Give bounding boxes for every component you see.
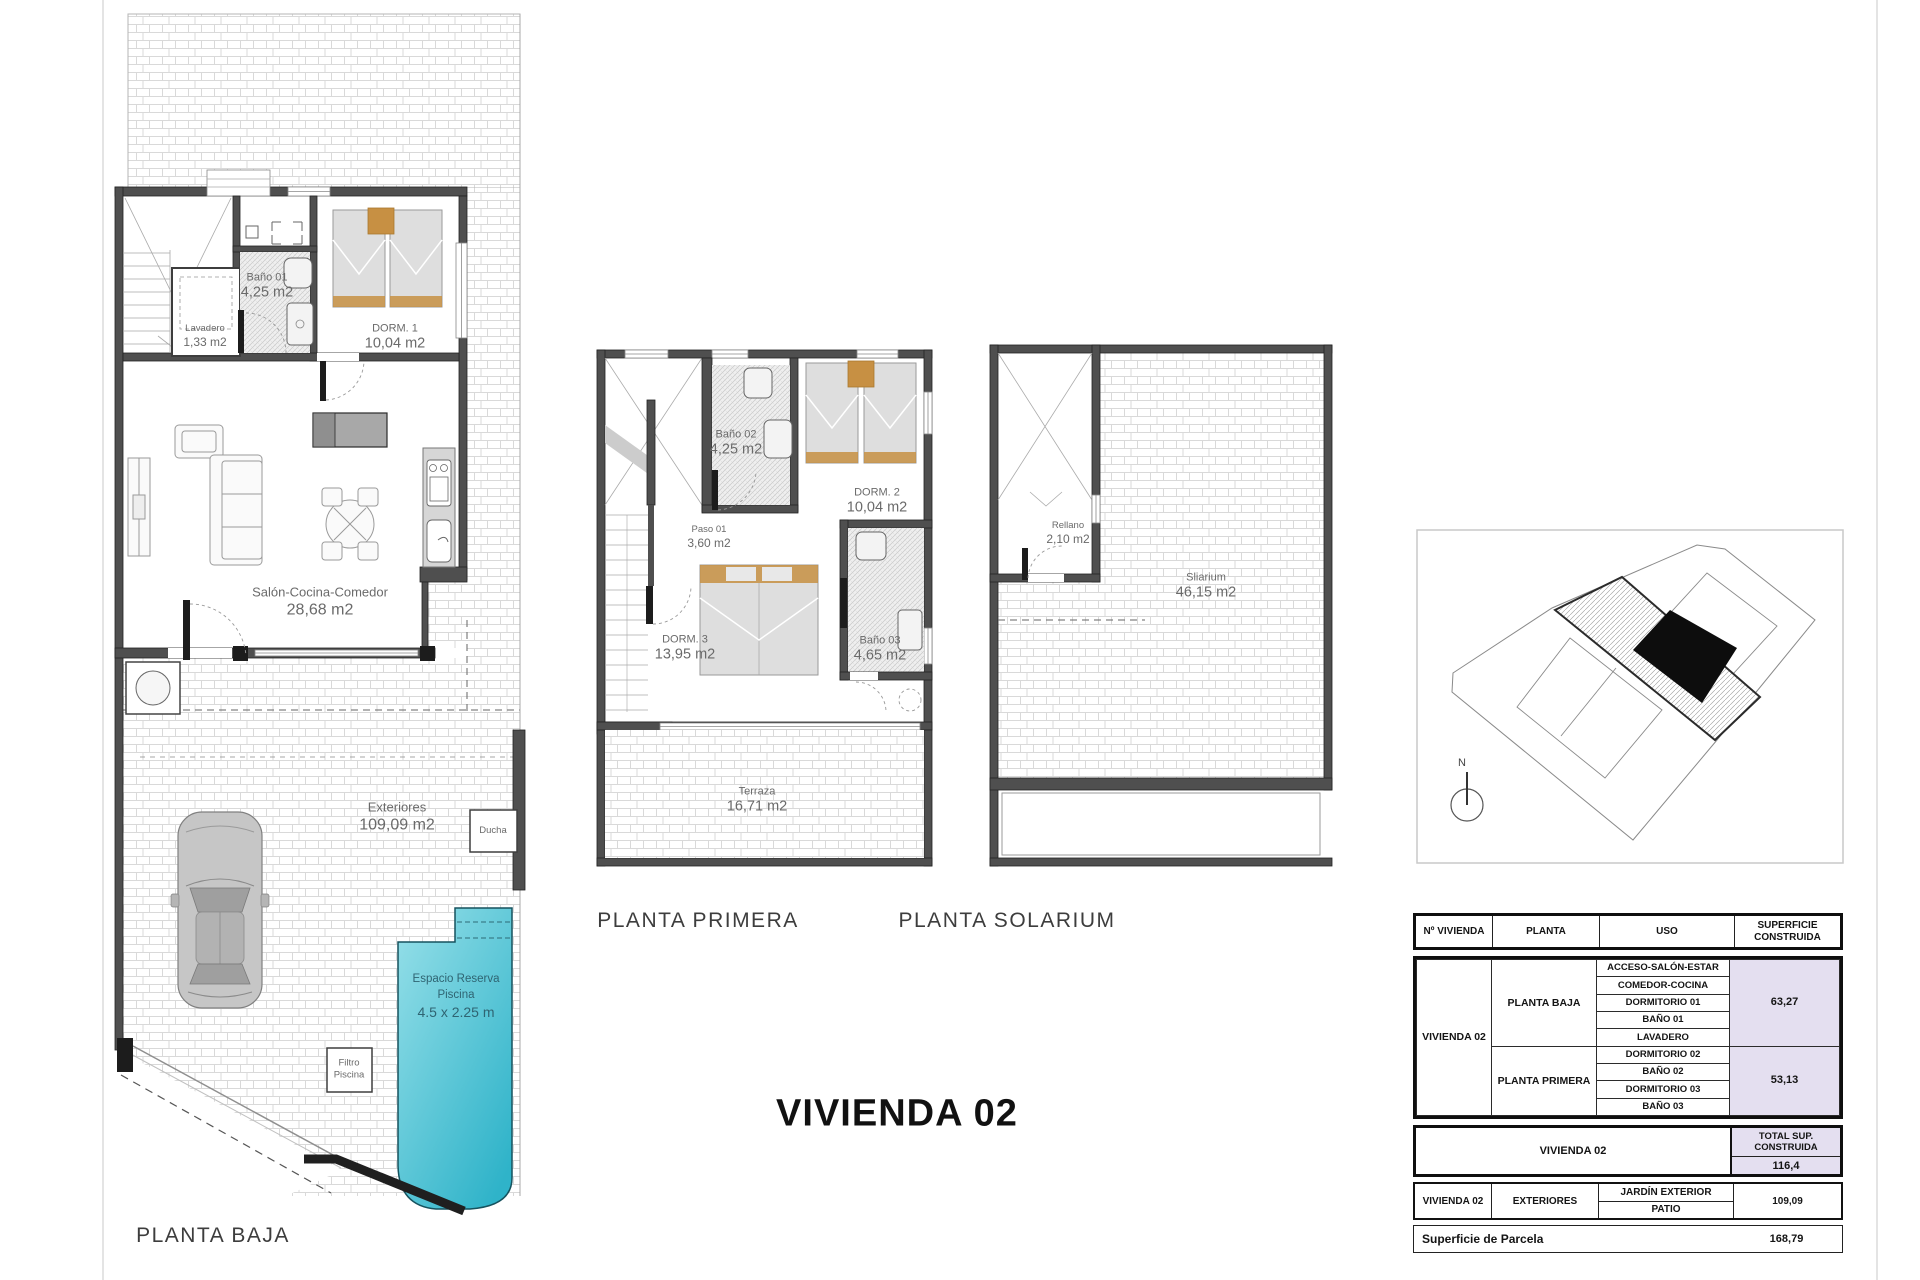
door-leaf [840, 578, 847, 628]
table-exteriores-row: VIVIENDA 02 EXTERIORES JARDÍN EXTERIOR P… [1413, 1182, 1843, 1220]
room-name: Baño 03 [854, 634, 906, 647]
header-superficie-line2: CONSTRUIDA [1754, 932, 1821, 944]
total-header: TOTAL SUP. CONSTRUIDA [1732, 1128, 1840, 1157]
room-area: 4,25 m2 [241, 285, 293, 303]
ext-planta: EXTERIORES [1491, 1184, 1598, 1218]
room-name: Paso 01 [687, 524, 730, 536]
room-label-dorm3: DORM. 3 13,95 m2 [655, 633, 715, 664]
cell-uso: COMEDOR-COCINA [1597, 977, 1730, 994]
header-planta: PLANTA [1492, 916, 1599, 947]
total-header-line1: TOTAL SUP. [1759, 1131, 1813, 1142]
room-area: 28,68 m2 [252, 600, 388, 620]
filter-line1: Filtro [334, 1057, 365, 1069]
room-label-paso01: Paso 01 3,60 m2 [687, 524, 730, 550]
room-label-bano03: Baño 03 4,65 m2 [854, 634, 906, 665]
table-body: VIVIENDA 02 PLANTA BAJA ACCESO-SALÓN-EST… [1413, 956, 1843, 1119]
door-leaf [712, 470, 718, 510]
toilet [744, 368, 772, 398]
planta-solarium-plan [990, 345, 1332, 866]
door-leaf [238, 310, 244, 353]
header-vivienda: Nº VIVIENDA [1416, 916, 1492, 947]
patio-paving [128, 14, 520, 188]
room-label-dorm2: DORM. 2 10,04 m2 [847, 486, 907, 517]
stair-flight [605, 425, 651, 476]
room-area: 4,25 m2 [710, 442, 762, 460]
room-area: 13,95 m2 [655, 647, 715, 665]
ext-uso-jardin: JARDÍN EXTERIOR [1599, 1184, 1733, 1202]
pillow [848, 361, 874, 387]
ext-superficie: 109,09 [1733, 1184, 1841, 1218]
room-label-exteriores: Exteriores 109,09 m2 [359, 799, 435, 834]
porch-column [233, 646, 248, 661]
cell-planta-primera: PLANTA PRIMERA [1492, 1046, 1597, 1115]
room-area: 10,04 m2 [365, 336, 425, 354]
pool-line2: Piscina [413, 988, 500, 1004]
cell-sup-primera: 53,13 [1730, 1046, 1840, 1115]
cell-uso: DORMITORIO 03 [1597, 1081, 1730, 1098]
pool-dimensions: 4.5 x 2.25 m [413, 1003, 500, 1022]
room-area: 2,10 m2 [1046, 531, 1089, 546]
room-name: Baño 02 [710, 428, 762, 441]
room-area: 1,33 m2 [183, 334, 226, 349]
header-uso: USO [1599, 916, 1734, 947]
ext-vivienda: VIVIENDA 02 [1415, 1184, 1491, 1218]
room-name: DORM. 2 [847, 486, 907, 499]
room-area: 16,71 m2 [727, 799, 787, 817]
room-label-bano02: Baño 02 4,25 m2 [710, 428, 762, 459]
cell-uso: DORMITORIO 01 [1597, 994, 1730, 1011]
shower-label: Ducha [479, 825, 506, 837]
room-label-dorm1: DORM. 1 10,04 m2 [365, 322, 425, 353]
room-area: 46,15 m2 [1176, 585, 1236, 603]
room-name: Baño 01 [241, 271, 293, 284]
porch-column [420, 646, 435, 661]
ext-uso-patio: PATIO [1599, 1202, 1733, 1219]
room-name: Terraza [727, 785, 787, 798]
filter-line2: Piscina [334, 1069, 365, 1081]
room-label-salon: Salón-Cocina-Comedor 28,68 m2 [252, 584, 388, 619]
room-name: Lavadero [183, 323, 226, 335]
cell-uso: BAÑO 02 [1597, 1063, 1730, 1080]
table-row: VIVIENDA 02 PLANTA BAJA ACCESO-SALÓN-EST… [1417, 960, 1840, 977]
room-label-bano01: Baño 01 4,25 m2 [241, 271, 293, 302]
room-name: Sliarium [1176, 571, 1236, 584]
room-label-lavadero: Lavadero 1,33 m2 [183, 323, 226, 349]
page-title: VIVIENDA 02 [776, 1093, 1018, 1136]
table-parcela-row: Superficie de Parcela 168,79 [1413, 1225, 1843, 1253]
sofa [210, 455, 262, 565]
staircase [998, 353, 1092, 506]
room-name: DORM. 3 [655, 633, 715, 646]
ext-usos: JARDÍN EXTERIOR PATIO [1598, 1184, 1733, 1218]
site-map [1417, 530, 1843, 863]
cell-uso: DORMITORIO 02 [1597, 1046, 1730, 1063]
surface-table: Nº VIVIENDA PLANTA USO SUPERFICIE CONSTR… [1413, 913, 1843, 1253]
cell-uso: LAVADERO [1597, 1029, 1730, 1046]
parcela-label: Superficie de Parcela [1414, 1232, 1731, 1246]
bedroom1-beds [333, 208, 442, 307]
planta-solarium-title: PLANTA SOLARIUM [899, 909, 1116, 933]
room-label-terraza: Terraza 16,71 m2 [727, 785, 787, 816]
room-label-rellano: Rellano 2,10 m2 [1046, 520, 1089, 546]
bedroom2-beds [806, 361, 916, 463]
entry-door-leaf [183, 600, 190, 660]
cell-sup-baja: 63,27 [1730, 960, 1840, 1047]
sink [764, 420, 792, 458]
room-name: Rellano [1046, 520, 1089, 532]
room-name: Exteriores [359, 799, 435, 815]
cell-vivienda: VIVIENDA 02 [1417, 960, 1492, 1116]
parcela-value: 168,79 [1731, 1233, 1842, 1245]
total-header-line2: CONSTRUIDA [1754, 1142, 1817, 1153]
total-vivienda: VIVIENDA 02 [1416, 1128, 1732, 1174]
toilet [856, 532, 886, 560]
header-superficie: SUPERFICIE CONSTRUIDA [1734, 916, 1840, 947]
table-total-row: VIVIENDA 02 TOTAL SUP. CONSTRUIDA 116,4 [1413, 1125, 1843, 1177]
room-area: 3,60 m2 [687, 535, 730, 550]
cell-uso: BAÑO 03 [1597, 1098, 1730, 1115]
toilet [287, 303, 313, 345]
lower-roof [1002, 793, 1320, 855]
header-superficie-line1: SUPERFICIE [1757, 920, 1817, 932]
solarium-paving [998, 353, 1324, 786]
room-area: 109,09 m2 [359, 815, 435, 835]
entry-porch [207, 170, 270, 196]
total-value: 116,4 [1732, 1157, 1840, 1174]
room-name: Salón-Cocina-Comedor [252, 584, 388, 600]
bedroom3-bed [700, 565, 818, 675]
car [171, 812, 269, 1008]
planta-baja-title: PLANTA BAJA [136, 1224, 290, 1248]
floorplan-sheet: Baño 01 4,25 m2 Lavadero 1,33 m2 DORM. 1… [0, 0, 1920, 1280]
cell-uso: BAÑO 01 [1597, 1011, 1730, 1028]
north-label: N [1458, 757, 1466, 769]
pool-label: Espacio Reserva Piscina 4.5 x 2.25 m [413, 972, 500, 1022]
door-leaf [646, 586, 653, 624]
door-leaf [320, 361, 326, 401]
pillow [368, 208, 394, 234]
pool [398, 908, 512, 1209]
door-leaf [1022, 548, 1028, 580]
pool-filter-label: Filtro Piscina [334, 1057, 365, 1080]
room-name: DORM. 1 [365, 322, 425, 335]
room-area: 4,65 m2 [854, 648, 906, 666]
table-header-row: Nº VIVIENDA PLANTA USO SUPERFICIE CONSTR… [1413, 913, 1843, 950]
planta-primera-title: PLANTA PRIMERA [597, 909, 799, 933]
pool-line1: Espacio Reserva [413, 972, 500, 988]
room-area: 10,04 m2 [847, 500, 907, 518]
cell-uso: ACCESO-SALÓN-ESTAR [1597, 960, 1730, 977]
cell-planta-baja: PLANTA BAJA [1492, 960, 1597, 1047]
room-label-solarium: Sliarium 46,15 m2 [1176, 571, 1236, 602]
